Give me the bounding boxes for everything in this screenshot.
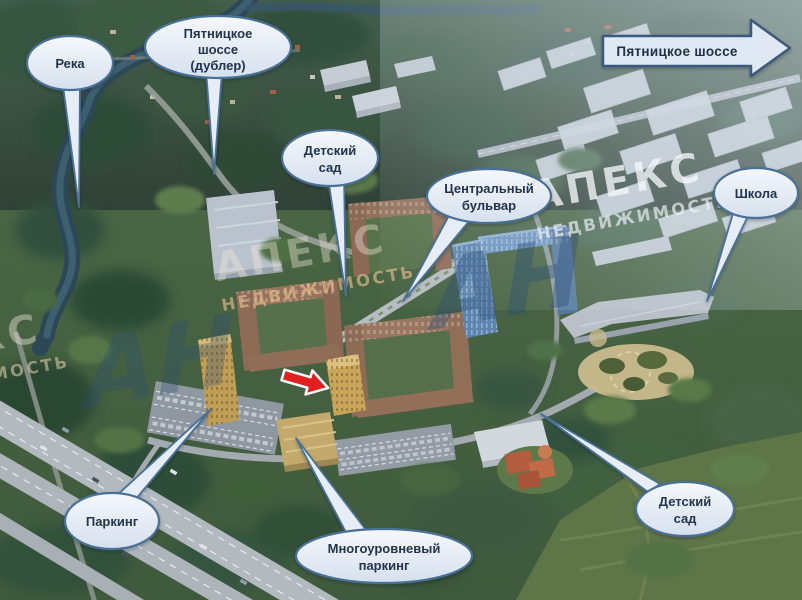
label-dubler-2: шоссе	[198, 42, 238, 57]
label-boulevard-1: Центральный	[444, 181, 533, 196]
multilevel-parking-building	[276, 412, 339, 472]
label-kindergarten-top-2: сад	[319, 160, 343, 175]
label-kindergarten-top-1: Детский	[304, 143, 356, 158]
label-dubler-1: Пятницкое	[184, 26, 253, 41]
label-boulevard-2: бульвар	[462, 198, 516, 213]
callout-boulevard	[427, 169, 551, 223]
label-multilevel-2: паркинг	[359, 558, 410, 573]
label-school: Школа	[735, 186, 778, 201]
aerial-photo: АН АПЕКС НЕДВИЖИМОСТЬ АН АПЕКС НЕДВИЖИМО…	[0, 0, 802, 600]
callout-kindergarten-bottom	[636, 482, 734, 536]
label-kindergarten-bottom-1: Детский	[659, 494, 711, 509]
direction-arrow-label: Пятницкое шоссе	[616, 44, 738, 59]
annotated-aerial-masterplan: АН АПЕКС НЕДВИЖИМОСТЬ АН АПЕКС НЕДВИЖИМО…	[0, 0, 802, 600]
label-river: Река	[55, 56, 85, 71]
callout-kindergarten-top	[282, 130, 378, 186]
label-parking: Паркинг	[86, 514, 139, 529]
callout-multilevel	[296, 529, 472, 583]
label-multilevel-1: Многоуровневый	[328, 541, 441, 556]
label-dubler-3: (дублер)	[190, 58, 245, 73]
label-kindergarten-bottom-2: сад	[674, 511, 698, 526]
